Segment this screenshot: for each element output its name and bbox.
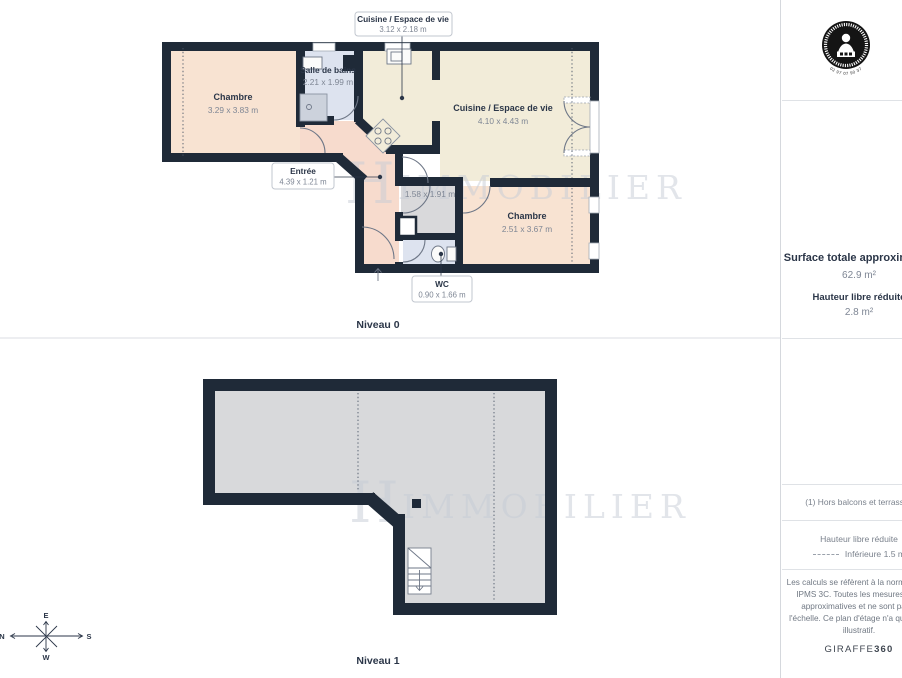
svg-text:3.12 x 2.18 m: 3.12 x 2.18 m	[379, 25, 426, 34]
level1-title: Niveau 1	[356, 655, 399, 667]
surface-total-title: Surface totale approximative	[781, 252, 902, 264]
legend-value: Inférieure 1.5 m	[845, 549, 902, 559]
svg-text:E: E	[43, 611, 48, 620]
floorplan-canvas: H IMMOBILIER	[0, 0, 780, 678]
legend-title: Hauteur libre réduite	[781, 534, 902, 544]
shower	[300, 94, 327, 121]
footnote: (1) Hors balcons et terrasses	[781, 497, 902, 507]
disclaimer: Les calculs se réfèrent à la norme RICS …	[781, 577, 902, 637]
level0-title: Niveau 0	[356, 319, 399, 331]
label-salle-de-bains: Salle de bains	[300, 65, 356, 75]
svg-text:0.90 x 1.66 m: 0.90 x 1.66 m	[418, 291, 465, 300]
dims-chambre-2: 2.51 x 3.67 m	[502, 224, 552, 234]
label-chambre-1: Chambre	[213, 92, 252, 102]
chimney-box	[412, 499, 421, 508]
svg-text:Entrée: Entrée	[290, 166, 316, 176]
label-chambre-2: Chambre	[507, 211, 546, 221]
svg-text:IMMOBILIER: IMMOBILIER	[398, 168, 687, 207]
sidebar-divider-2	[782, 338, 902, 339]
svg-text:Cuisine / Espace de vie: Cuisine / Espace de vie	[357, 14, 449, 24]
toilet-tank	[447, 247, 456, 261]
dims-cuisine: 4.10 x 4.43 m	[478, 116, 528, 126]
sidebar-divider-5	[782, 569, 902, 570]
dashed-line-sample	[813, 554, 839, 555]
svg-text:S: S	[86, 632, 91, 641]
staircase	[408, 548, 431, 594]
label-cuisine: Cuisine / Espace de vie	[453, 103, 553, 113]
reduced-height-title: Hauteur libre réduite	[781, 292, 902, 303]
sidebar-divider-4	[782, 520, 902, 521]
giraffe360-brand: GIRAFFE360	[781, 644, 902, 655]
dims-chambre-1: 3.29 x 3.83 m	[208, 105, 258, 115]
svg-text:N: N	[0, 632, 5, 641]
plan-level0: H IMMOBILIER	[162, 12, 687, 331]
agency-stamp-logo: 02 97 07 90 37	[781, 0, 902, 92]
dims-petite-piece: 1.58 x 1.91 m	[405, 189, 455, 199]
reduced-height-value: 2.8 m²	[781, 307, 902, 318]
svg-text:W: W	[42, 653, 50, 662]
svg-text:4.39 x 1.21 m: 4.39 x 1.21 m	[279, 178, 326, 187]
sidebar-divider-3	[782, 484, 902, 485]
svg-text:WC: WC	[435, 279, 449, 289]
legend-item: Inférieure 1.5 m	[781, 549, 902, 559]
svg-text:H: H	[345, 151, 395, 217]
sidebar-divider-1	[782, 100, 902, 101]
compass-icon	[11, 622, 83, 652]
plan-level1: H IMMOBILIER Niveau 1	[203, 379, 691, 667]
surface-total-value: 62.9 m²	[781, 270, 902, 281]
agent-figure-icon	[842, 34, 850, 42]
duct-box	[399, 217, 416, 236]
dims-salle-de-bains: 2.21 x 1.99 m	[303, 77, 353, 87]
info-sidebar: 02 97 07 90 37 Surface totale approximat…	[780, 0, 902, 678]
